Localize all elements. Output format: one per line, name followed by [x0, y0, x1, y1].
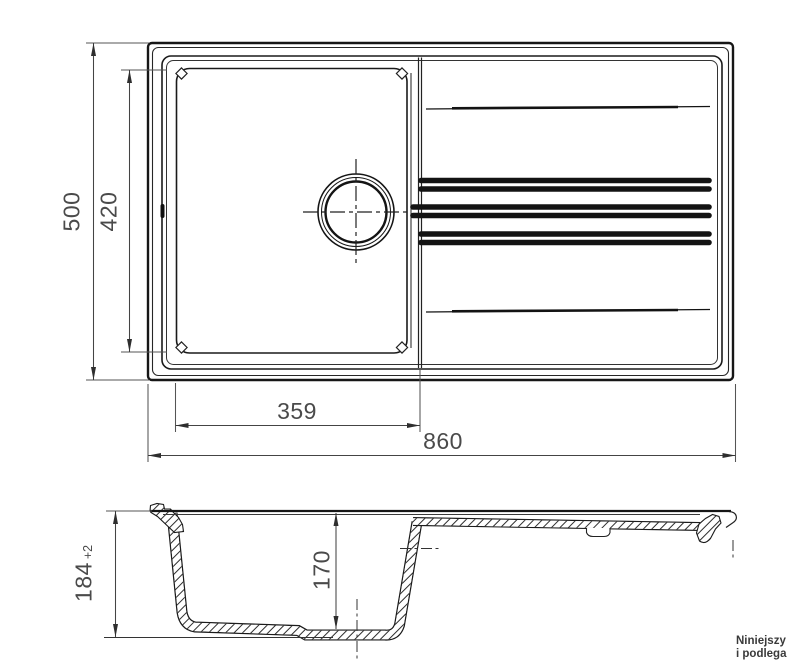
section-drainboard: [413, 522, 700, 537]
dim-184-label: 184: [71, 562, 97, 602]
section-view: 184 +2 170: [71, 504, 737, 663]
section-bowl-wall: [172, 513, 417, 635]
dim-860-label: 860: [423, 428, 463, 454]
dim-420: 420: [96, 70, 168, 352]
section-left-rim: [150, 504, 184, 533]
dim-359: 359: [176, 369, 421, 432]
dim-170: 170: [309, 513, 339, 629]
bowl-corner-chamfers: [176, 68, 408, 353]
clip-bump: [587, 528, 611, 537]
corner-note: Niniejszy i podlega: [736, 635, 800, 661]
section-top-surface: [150, 511, 731, 515]
dim-860: 860: [148, 384, 736, 462]
section-right-rim: [697, 515, 722, 543]
dim-359-label: 359: [277, 398, 317, 424]
drain-circle: [318, 174, 394, 250]
dim-420-label: 420: [96, 192, 122, 232]
corner-note-line1: Niniejszy: [736, 635, 800, 648]
corner-note-line2: i podlega: [736, 648, 800, 661]
top-view: 500 420 359: [59, 43, 736, 462]
bowl-rim: [163, 58, 422, 369]
dim-500-label: 500: [59, 192, 85, 232]
drainboard-grooves: [413, 107, 710, 313]
dim-184: 184 +2: [71, 511, 153, 637]
dim-184-tolerance-label: +2: [81, 545, 95, 559]
drain-centerlines: [303, 159, 409, 265]
sink-outline: [148, 43, 733, 380]
drawing-canvas: 500 420 359: [0, 0, 800, 668]
dim-170-label: 170: [309, 550, 335, 590]
technical-drawing-page: { "drawing": { "type": "sink-technical-d…: [0, 0, 800, 668]
